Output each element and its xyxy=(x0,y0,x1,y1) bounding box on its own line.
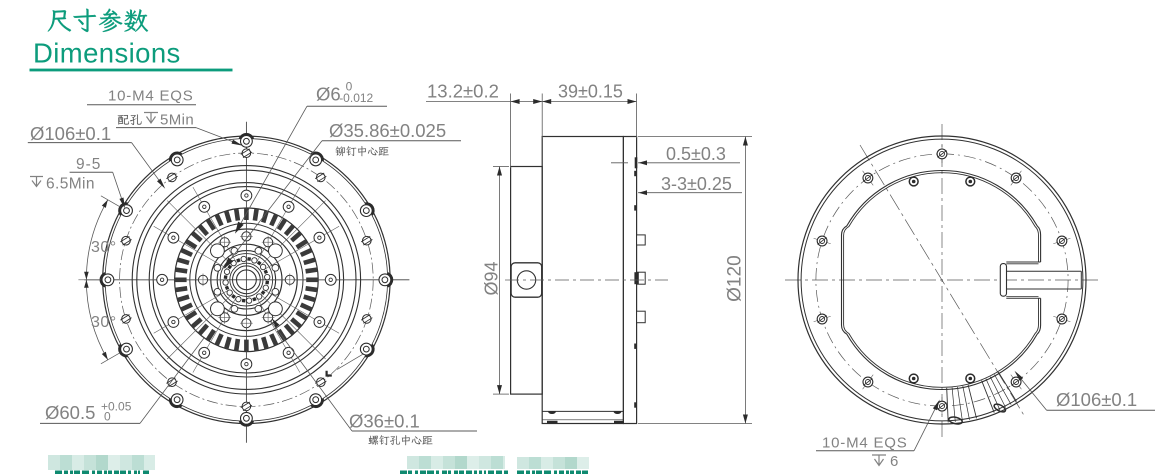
svg-text:6: 6 xyxy=(890,453,898,470)
svg-text:10-M4 EQS: 10-M4 EQS xyxy=(822,435,908,452)
svg-text:30°: 30° xyxy=(91,239,117,256)
svg-text:5Min: 5Min xyxy=(160,112,194,129)
svg-text:0.5±0.3: 0.5±0.3 xyxy=(666,144,726,164)
svg-text:30°: 30° xyxy=(91,314,117,331)
svg-text:Ø36±0.1: Ø36±0.1 xyxy=(349,411,420,432)
svg-text:0: 0 xyxy=(104,410,111,424)
svg-text:Ø6: Ø6 xyxy=(316,84,341,105)
svg-text:39±0.15: 39±0.15 xyxy=(558,82,623,102)
svg-text:9-5: 9-5 xyxy=(76,156,101,173)
svg-text:Dimensions: Dimensions xyxy=(33,38,181,69)
svg-text:-0.012: -0.012 xyxy=(339,91,373,105)
svg-text:Ø35.86±0.025: Ø35.86±0.025 xyxy=(329,120,446,141)
svg-text:Ø106±0.1: Ø106±0.1 xyxy=(30,123,111,144)
svg-text:6.5Min: 6.5Min xyxy=(46,175,95,192)
svg-text:Ø94: Ø94 xyxy=(482,261,502,295)
svg-text:10-M4 EQS: 10-M4 EQS xyxy=(108,88,194,105)
svg-text:Ø120: Ø120 xyxy=(725,255,746,301)
svg-text:3-3±0.25: 3-3±0.25 xyxy=(661,174,732,194)
svg-text:Ø106±0.1: Ø106±0.1 xyxy=(1056,389,1137,410)
svg-text:13.2±0.2: 13.2±0.2 xyxy=(427,81,499,102)
svg-text:Ø60.5: Ø60.5 xyxy=(45,402,95,423)
